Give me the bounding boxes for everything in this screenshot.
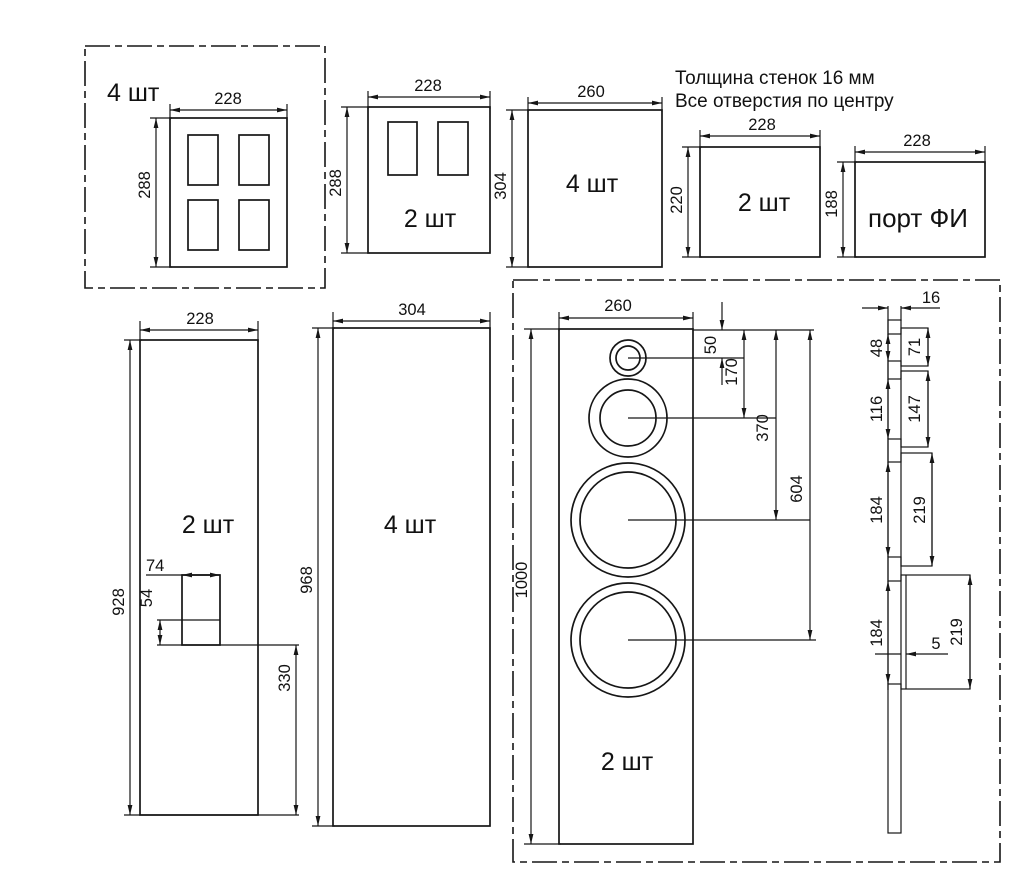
note-line1: Толщина стенок 16 мм — [675, 68, 875, 89]
wall-thickness-dim: 16 — [922, 289, 940, 307]
panel-p5-group: порт ФИ 228 188 — [823, 132, 985, 257]
p2-cutout-1 — [388, 122, 417, 175]
side2-dims: 304 968 — [298, 301, 490, 826]
side-panel — [140, 340, 258, 815]
note-group: Толщина стенок 16 мм Все отверстия по це… — [675, 68, 894, 112]
side-cut-width-dim: 74 — [146, 557, 164, 575]
recess4-dim: 219 — [948, 618, 966, 646]
p2-qty-label: 2 шт — [404, 205, 457, 233]
recess1-dim: 71 — [906, 338, 924, 356]
mid-offset-dim: 170 — [723, 358, 741, 386]
p3-width-dim: 260 — [577, 83, 605, 101]
p5-height-dim: 188 — [823, 190, 841, 218]
hole3-dim: 184 — [868, 496, 886, 524]
section-wall-1 — [888, 320, 901, 334]
drawing-canvas: Толщина стенок 16 мм Все отверстия по це… — [0, 0, 1029, 885]
section-wall-2 — [888, 361, 901, 379]
p4-qty-label: 2 шт — [738, 189, 791, 217]
front-qty-label: 2 шт — [601, 748, 654, 776]
side2-qty-label: 4 шт — [384, 511, 437, 539]
section-wall-4 — [888, 557, 901, 581]
p1-cutout-4 — [239, 200, 269, 250]
note-line2: Все отверстия по центру — [675, 91, 894, 112]
p5-dims: 228 188 — [823, 132, 985, 257]
section-group: 16 48 116 184 184 71 147 219 219 5 — [862, 289, 970, 833]
p2-width-dim: 228 — [414, 77, 442, 95]
p1-cutout-3 — [188, 200, 218, 250]
side-cut-bottom-dim: 330 — [276, 664, 294, 692]
recess3-dim: 219 — [911, 496, 929, 524]
front-width-dim: 260 — [604, 297, 632, 315]
p3-height-dim: 304 — [492, 172, 510, 200]
recess-depth-dim: 5 — [931, 635, 940, 653]
tweeter-offset-dim: 50 — [702, 336, 720, 354]
side2-height-dim: 968 — [298, 566, 316, 594]
panel-p4-group: 2 шт 228 220 — [668, 116, 820, 257]
p1-width-dim: 228 — [214, 90, 242, 108]
section-dims: 16 48 116 184 184 71 147 219 219 5 — [862, 289, 970, 689]
speaker-cutting-diagram: Толщина стенок 16 мм Все отверстия по це… — [0, 0, 1029, 885]
panel-front-group: 2 шт 260 1000 50 170 370 — [513, 297, 816, 844]
front-sheet-outline — [513, 280, 1000, 862]
section-wall-bottom — [888, 684, 901, 833]
section-wall-3 — [888, 439, 901, 462]
side-height-dim: 928 — [110, 588, 128, 616]
p1-cutout-2 — [239, 135, 269, 185]
hole2-dim: 116 — [868, 396, 886, 422]
side-cut-height-dim: 54 — [138, 589, 156, 607]
panel-side-group: 2 шт 228 928 74 54 330 — [110, 310, 299, 815]
hole4-dim: 184 — [868, 619, 886, 647]
p2-cutout-2 — [438, 122, 468, 175]
panel-p3-group: 4 шт 260 304 — [492, 83, 662, 267]
p1-qty-label: 4 шт — [107, 79, 160, 107]
p3-qty-label: 4 шт — [566, 170, 619, 198]
side-cutout — [182, 575, 220, 645]
side2-panel — [333, 328, 490, 826]
woofer1-offset-dim: 370 — [754, 414, 772, 442]
p2-height-dim: 288 — [327, 169, 345, 197]
side-width-dim: 228 — [186, 310, 214, 328]
p1-height-dim: 288 — [136, 171, 154, 199]
front-height-dim: 1000 — [513, 562, 531, 599]
hole1-dim: 48 — [868, 339, 886, 357]
p5-port-label: порт ФИ — [868, 203, 968, 233]
woofer2-offset-dim: 604 — [788, 475, 806, 503]
p4-dims: 228 220 — [668, 116, 820, 257]
panel-p1-group: 4 шт 228 288 — [85, 46, 325, 288]
p4-height-dim: 220 — [668, 186, 686, 214]
side-qty-label: 2 шт — [182, 511, 235, 539]
side-dims: 228 928 74 54 330 — [110, 310, 299, 815]
p1-cutout-1 — [188, 135, 218, 185]
recess2-dim: 147 — [906, 395, 924, 423]
side2-width-dim: 304 — [398, 301, 426, 319]
panel-p2-group: 2 шт 228 288 — [327, 77, 490, 253]
p5-width-dim: 228 — [903, 132, 931, 150]
p4-width-dim: 228 — [748, 116, 776, 134]
p1-dims: 228 288 — [136, 90, 287, 267]
panel-side2-group: 4 шт 304 968 — [298, 301, 490, 826]
